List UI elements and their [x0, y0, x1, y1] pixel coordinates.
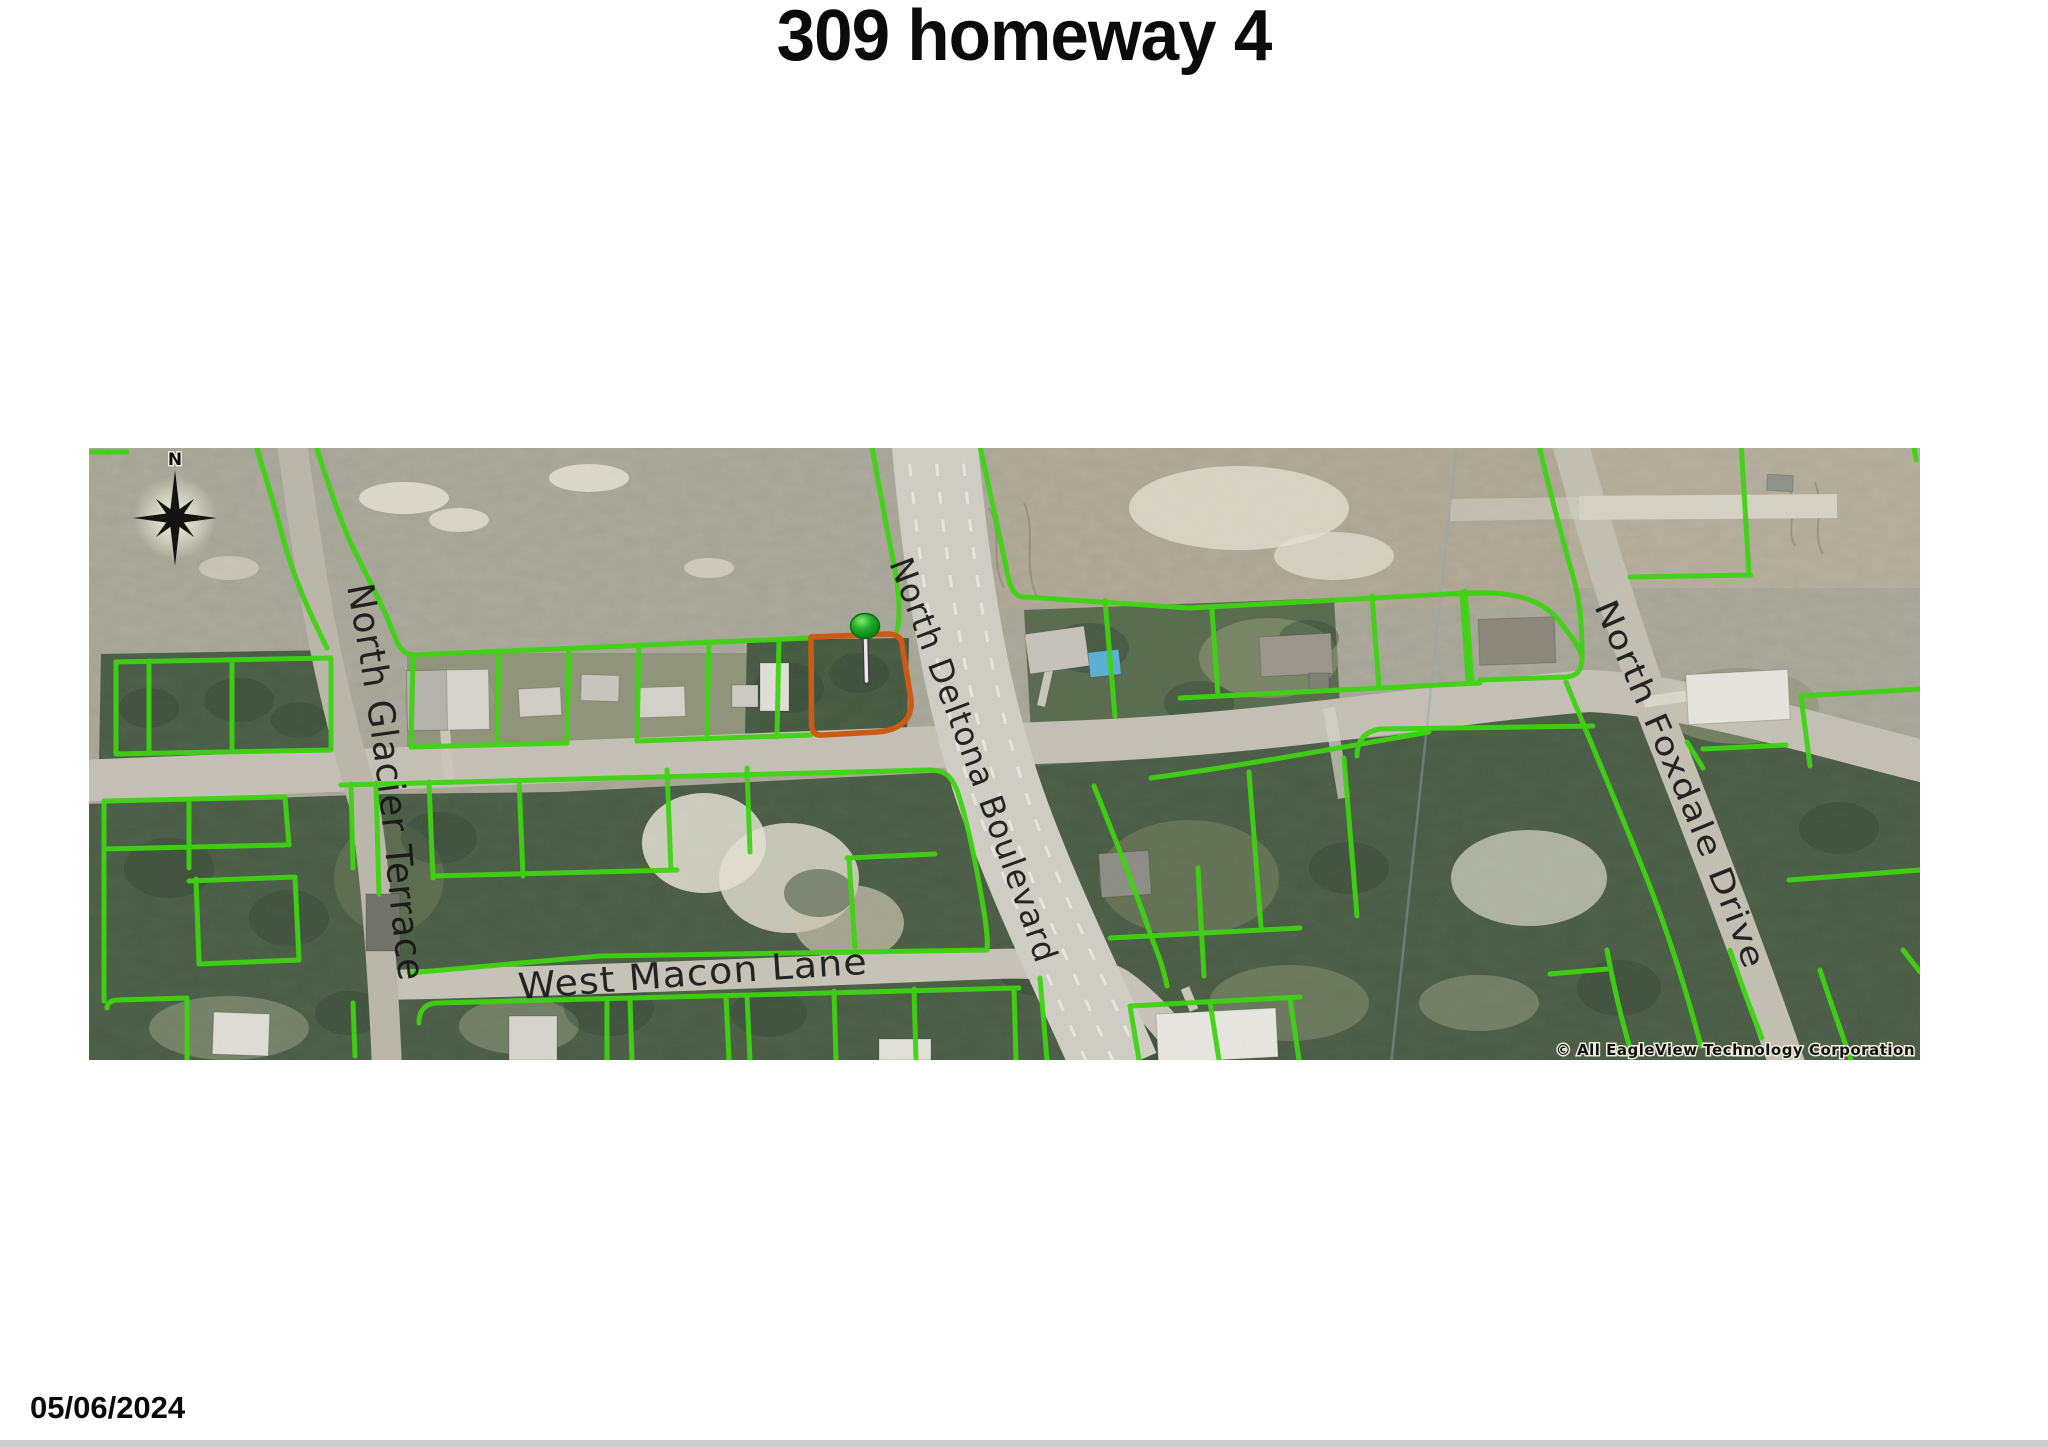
aerial-map: North Glacier Terrace North Deltona Boul…	[89, 448, 1920, 1060]
pin-head	[851, 614, 880, 639]
film-grain-overlay	[89, 448, 1920, 1060]
date-stamp: 05/06/2024	[30, 1390, 185, 1426]
page-title: 309 homeway 4	[41, 0, 2007, 72]
map-copyright: © All EagleView Technology Corporation	[1556, 1041, 1915, 1059]
compass-north-label: N	[168, 450, 182, 470]
bottom-edge-bar	[0, 1440, 2048, 1447]
